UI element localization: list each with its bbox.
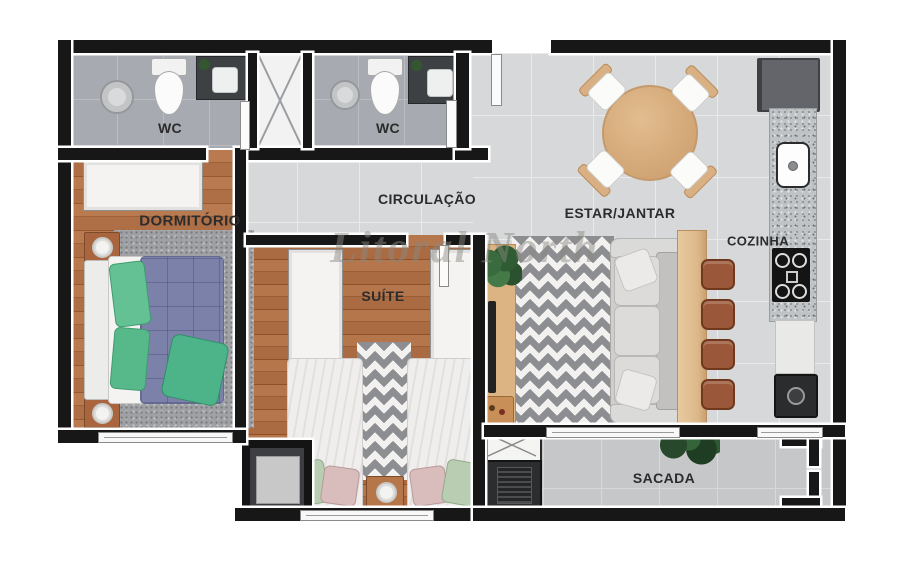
lamp bbox=[376, 482, 397, 503]
bar-stool-1 bbox=[701, 259, 735, 290]
kitchen-sink bbox=[776, 142, 810, 188]
vanity-plant bbox=[411, 60, 422, 71]
wall-suite-right bbox=[473, 235, 485, 521]
wall-left bbox=[58, 40, 71, 443]
label-dormitorio: DORMITÓRIO bbox=[139, 213, 241, 230]
vanity-plant bbox=[199, 59, 210, 70]
wall-top-left bbox=[58, 40, 492, 53]
suite-runner-rug bbox=[357, 342, 411, 480]
window-suite bbox=[300, 510, 434, 521]
wardrobe-dormitorio bbox=[84, 162, 202, 210]
vanity-counter-2 bbox=[408, 56, 458, 104]
pillow-green-2 bbox=[109, 327, 150, 392]
pillow-green-1 bbox=[108, 260, 152, 328]
double-bed bbox=[84, 256, 222, 402]
shower-head-2 bbox=[330, 80, 360, 110]
label-circulacao: CIRCULAÇÃO bbox=[378, 191, 476, 207]
wall-right bbox=[833, 40, 846, 521]
toilet-2 bbox=[366, 58, 402, 116]
wall-wc-bottom-a bbox=[58, 148, 206, 160]
window-cozinha-sacada bbox=[757, 427, 823, 438]
cooktop bbox=[772, 248, 810, 302]
sofa bbox=[610, 238, 682, 422]
wc-left-door-leaf bbox=[240, 101, 250, 150]
wall-wc-bottom-b bbox=[248, 148, 460, 160]
ac-unit bbox=[256, 456, 300, 504]
balcony-pilaster-bottom-h bbox=[782, 498, 820, 508]
single-bed-right bbox=[407, 358, 483, 510]
floor-plan: WC WC DORMITÓRIO CIRCULAÇÃO ESTAR/JANTAR… bbox=[0, 0, 900, 586]
label-wc-right: WC bbox=[376, 120, 400, 136]
shaft-x-brace bbox=[257, 53, 303, 148]
washing-machine bbox=[774, 374, 818, 418]
sofa-cushion bbox=[614, 306, 660, 356]
wardrobe-suite-left bbox=[289, 250, 342, 368]
tv bbox=[488, 301, 496, 393]
toilet-bowl bbox=[370, 71, 400, 115]
label-suite: SUÍTE bbox=[361, 288, 404, 304]
bar-stool-2 bbox=[701, 299, 735, 330]
label-estar-jantar: ESTAR/JANTAR bbox=[565, 205, 676, 221]
barbecue-grill bbox=[486, 460, 542, 510]
wall-top-right bbox=[551, 40, 846, 53]
label-wc-left: WC bbox=[158, 120, 182, 136]
service-shaft-box bbox=[242, 440, 312, 516]
faucet bbox=[788, 161, 798, 171]
wall-shaft-right bbox=[303, 53, 312, 148]
wall-wc2-right bbox=[456, 53, 469, 148]
fridge bbox=[757, 58, 820, 112]
wall-dorm-suite bbox=[235, 148, 246, 437]
wall-entry-stub bbox=[455, 148, 488, 160]
sliding-door-sacada bbox=[546, 427, 680, 438]
lamp bbox=[92, 237, 113, 258]
pillow-pink bbox=[320, 465, 361, 508]
dishwasher bbox=[775, 320, 815, 374]
vanity-counter bbox=[196, 56, 250, 100]
bar-stool-3 bbox=[701, 339, 735, 370]
entry-door-leaf bbox=[491, 54, 502, 106]
sink bbox=[212, 67, 238, 93]
wall-suite-top-a bbox=[246, 235, 406, 245]
toilet bbox=[150, 58, 186, 116]
sink bbox=[427, 69, 453, 97]
lamp bbox=[92, 403, 113, 424]
suite-door-leaf bbox=[439, 245, 449, 287]
wc-right-door-leaf bbox=[446, 100, 457, 148]
label-sacada: SACADA bbox=[633, 470, 695, 486]
shower-head bbox=[100, 80, 134, 114]
side-table bbox=[482, 396, 514, 428]
window-dormitorio bbox=[98, 432, 233, 443]
label-cozinha: COZINHA bbox=[727, 234, 789, 249]
living-rug bbox=[512, 236, 614, 424]
balcony-pilaster-top-v bbox=[809, 437, 819, 466]
nightstand-suite bbox=[366, 476, 404, 508]
toilet-bowl bbox=[154, 71, 184, 115]
bar-stool-4 bbox=[701, 379, 735, 410]
wall-sacada-bottom bbox=[473, 508, 845, 521]
